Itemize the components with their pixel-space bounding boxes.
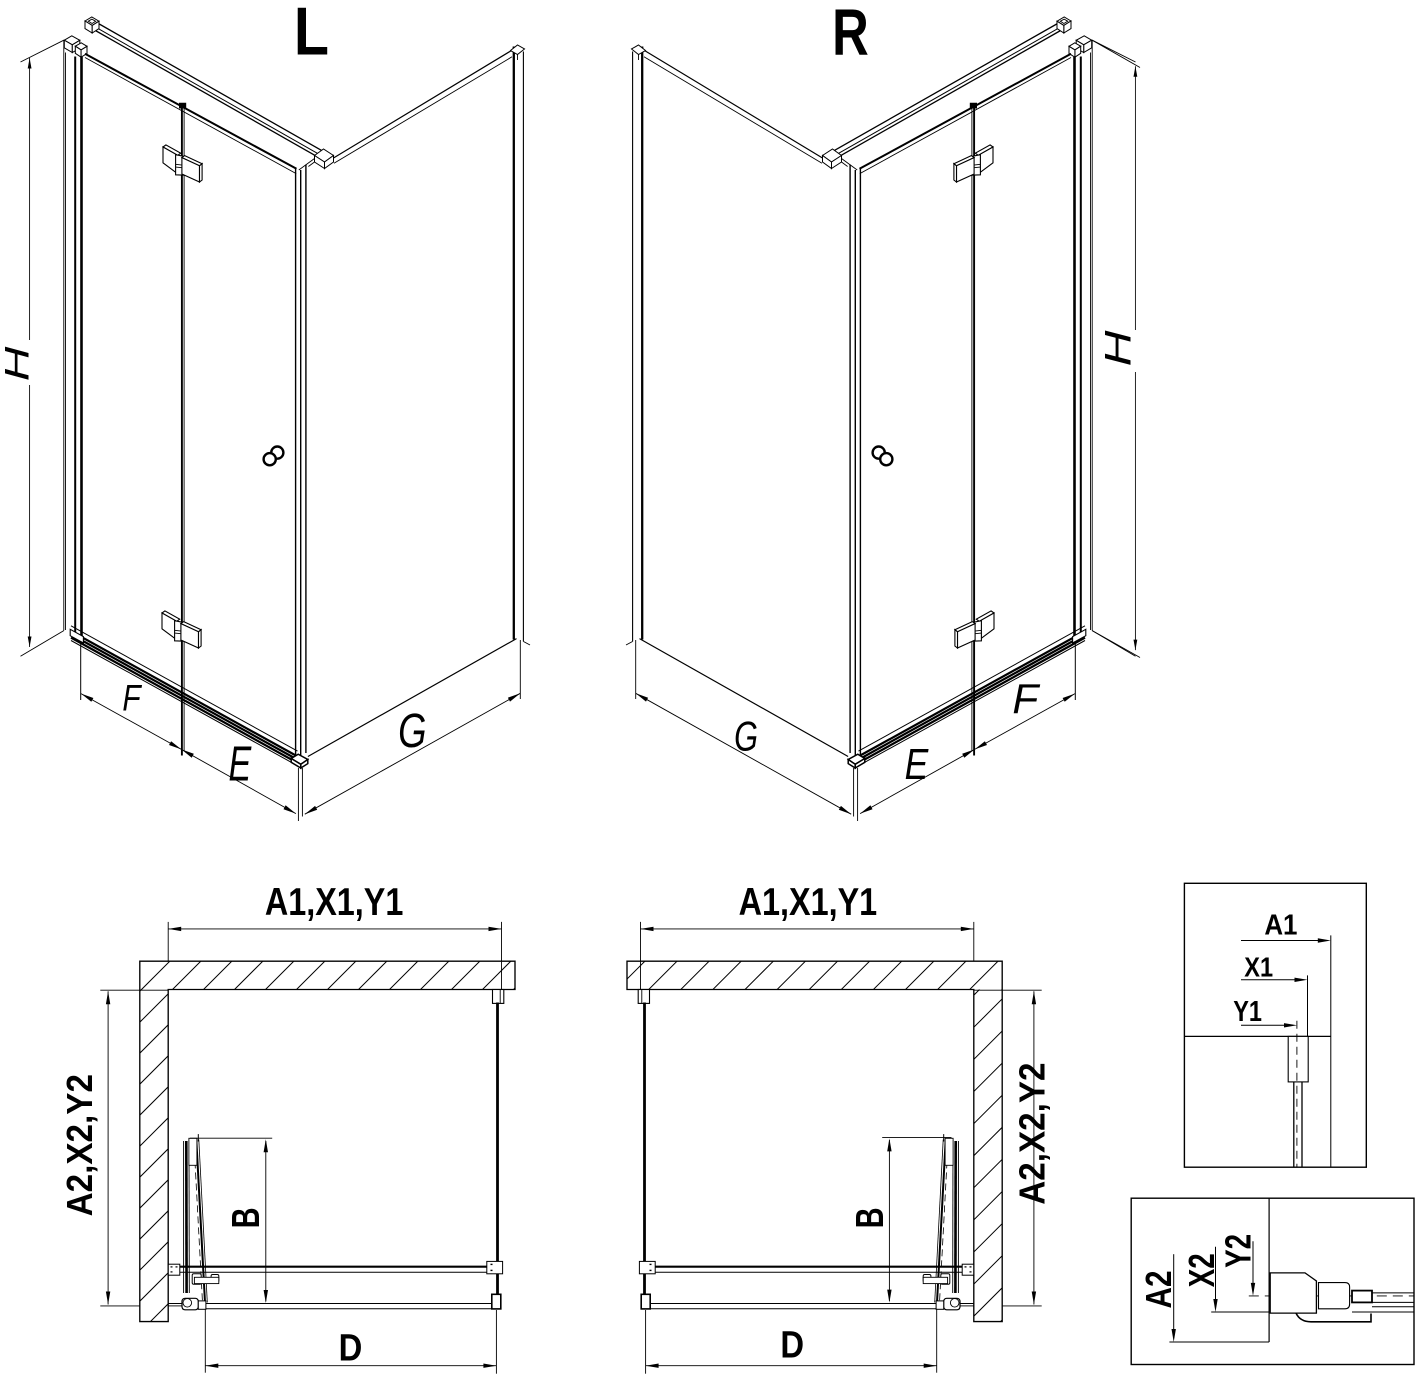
svg-text:A1: A1 [1264,908,1297,941]
svg-text:D: D [339,1326,363,1369]
svg-text:A2: A2 [1139,1271,1180,1309]
svg-text:H: H [0,346,36,382]
svg-text:R: R [832,0,869,69]
svg-text:E: E [905,741,930,789]
svg-text:X1: X1 [1244,953,1273,983]
svg-text:A1,X1,Y1: A1,X1,Y1 [265,879,404,924]
svg-text:B: B [225,1207,268,1228]
svg-text:G: G [398,704,426,758]
svg-text:F: F [1012,675,1040,721]
svg-text:F: F [122,679,143,720]
svg-text:H: H [1099,330,1139,366]
svg-text:A1,X1,Y1: A1,X1,Y1 [739,879,878,924]
svg-text:Y1: Y1 [1233,994,1262,1027]
svg-text:G: G [734,713,758,760]
svg-text:D: D [780,1323,804,1366]
svg-text:A2,X2,Y2: A2,X2,Y2 [60,1074,101,1216]
svg-text:E: E [229,737,252,792]
svg-text:L: L [294,0,329,70]
svg-text:B: B [849,1207,892,1228]
svg-text:Y2: Y2 [1218,1234,1258,1268]
svg-text:X2: X2 [1181,1253,1221,1287]
svg-text:A2,X2,Y2: A2,X2,Y2 [1012,1062,1053,1204]
